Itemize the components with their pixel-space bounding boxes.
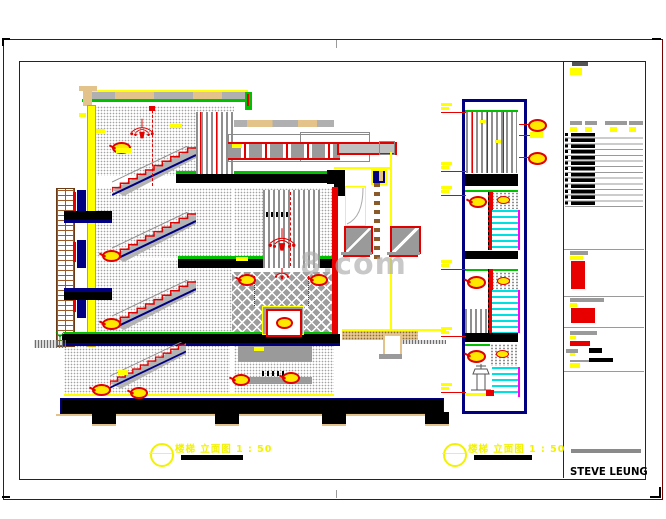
leader-label [441, 186, 467, 196]
tb-label-bar [570, 331, 597, 335]
leader-label [441, 162, 467, 172]
door-swing-arc [346, 187, 365, 225]
roof-green-line [82, 99, 250, 102]
frame-tick-bottom-center [336, 490, 337, 498]
wall-yellow-strip [87, 105, 96, 347]
symbol-fish [102, 250, 121, 262]
callout-oval [528, 152, 547, 165]
tb-label-mark [570, 256, 583, 260]
symbol-fish [282, 372, 300, 384]
brand-logo: STEVE LEUNG [570, 465, 638, 478]
dc-stair-d [492, 367, 520, 397]
label-text-bar [441, 186, 452, 189]
tb-sign-black [589, 348, 602, 353]
dc-oval-b [497, 196, 510, 204]
footing-1 [92, 412, 116, 426]
leader-label [441, 327, 467, 337]
tb-sign-mark [570, 353, 575, 356]
dc-fleck-1 [480, 120, 486, 123]
roof-slab [86, 92, 248, 99]
roof-post-tick [247, 94, 249, 106]
footing-4 [425, 412, 449, 426]
window-bar-2 [73, 242, 76, 262]
dc-oval-d [496, 350, 509, 358]
symbol-fish [238, 274, 256, 286]
leader-label [441, 103, 467, 113]
tan-post [379, 171, 383, 181]
tb-head-mark [585, 127, 592, 132]
tb-sign-line [570, 360, 590, 362]
symbol-fish [469, 196, 487, 208]
frame-tick-br2 [659, 487, 661, 498]
leader-line [441, 392, 466, 393]
frame-tick-top-center [336, 40, 337, 48]
window-bar-1 [73, 192, 76, 212]
label-text-bar [441, 166, 449, 169]
dc-oval-c [497, 277, 510, 285]
stair-flight-4 [110, 342, 186, 390]
landing-2 [64, 292, 112, 300]
leader-label [441, 260, 467, 270]
highlight [232, 144, 242, 148]
tb-label-bar [570, 298, 604, 302]
tb-head-bar [570, 121, 582, 125]
footing-2 [215, 412, 239, 426]
highlight [236, 257, 248, 261]
landing-1-edge [64, 220, 112, 223]
tb-head-bar [629, 121, 643, 125]
highlight [118, 370, 128, 375]
plumb-line [152, 110, 153, 186]
symbol-fish [467, 276, 486, 289]
cabinet-block [238, 346, 312, 362]
chandelier-icon-small [272, 268, 292, 281]
tb-divider [564, 371, 644, 372]
symbol-fish [232, 374, 250, 386]
label-text-bar [441, 383, 452, 386]
stair-flight-3 [112, 280, 196, 330]
terrace-speckle [396, 340, 446, 344]
roof-right-slab [228, 120, 334, 127]
tb-sign-black2 [589, 358, 613, 362]
tb-revision-entries [571, 133, 595, 206]
section-mark-b [443, 443, 467, 467]
window-band [228, 142, 340, 160]
caption-detail-underline [474, 455, 532, 460]
highlight [254, 347, 264, 351]
dc-curtain-a [466, 112, 517, 173]
tb-notes-highlight [570, 68, 582, 75]
curtain-top-line-2 [216, 112, 217, 174]
tb-sign-mark2 [570, 363, 580, 368]
section-mark-a-line [149, 453, 172, 454]
tb-divider [564, 296, 644, 297]
leader-line [441, 336, 466, 337]
curtain-tassels [266, 212, 290, 217]
frame-tick-tr [652, 38, 661, 40]
tb-head-mark [610, 127, 617, 132]
highlight [116, 148, 132, 153]
dc-stair-c [492, 290, 520, 333]
label-text-bar [441, 190, 449, 193]
cad-canvas: 8.com [0, 0, 666, 519]
label-text-bar [441, 260, 452, 263]
highlight [79, 113, 86, 117]
section-mark-b-line [442, 453, 465, 454]
tb-stamp-large [571, 261, 585, 289]
parapet-strip [83, 91, 92, 106]
terrace-footing-base [379, 354, 402, 359]
tb-label-mark [570, 303, 577, 307]
terrace-ground [342, 331, 418, 340]
tb-notes-text [572, 62, 588, 66]
label-text-bar [441, 103, 452, 106]
highlight [170, 124, 182, 128]
tb-divider [564, 249, 644, 250]
label-text-bar [441, 327, 452, 330]
plumb-mark [149, 106, 155, 111]
tb-label-bar [570, 251, 588, 255]
callout-oval [528, 119, 547, 132]
label-text-bar [441, 264, 449, 267]
dc-slab-a [465, 174, 518, 186]
symbol-fish [130, 387, 148, 399]
dc-red-line-1 [472, 112, 473, 173]
railing-end-box [379, 141, 395, 155]
leader-line [441, 195, 466, 196]
ground-left-speckle [34, 340, 66, 348]
plant-icon [54, 331, 66, 341]
chandelier-icon [266, 228, 298, 254]
caption-main-underline [181, 455, 243, 460]
tb-head-mark [570, 127, 577, 132]
callout-tag [530, 132, 543, 138]
section-mark-a [150, 443, 174, 467]
footing-3 [322, 412, 346, 426]
leader-line [441, 112, 466, 113]
tb-divider [564, 327, 644, 328]
tb-stamp-bar [570, 341, 590, 346]
label-text-bar [441, 107, 449, 110]
leader-label [441, 383, 467, 393]
frame-tick-tl2 [2, 38, 4, 46]
tb-revision-dots [565, 133, 568, 206]
leader-line [441, 171, 466, 172]
tb-stamp-medium [571, 308, 595, 323]
symbol-fish [102, 318, 121, 330]
foundation [60, 398, 444, 414]
label-text-bar [441, 387, 449, 390]
door-swing [345, 186, 366, 226]
dc-slab-c [465, 333, 518, 342]
landing-1 [64, 211, 112, 220]
label-text-bar [441, 331, 449, 334]
symbol-fish [92, 384, 111, 396]
caption-detail: 楼梯 立面图 1 : 50 [468, 441, 565, 455]
cabinet-base [240, 377, 312, 384]
wall-navy-2 [77, 240, 86, 268]
dc-red-line-2 [487, 112, 488, 173]
tb-logo-rule [571, 449, 641, 453]
highlight [96, 129, 105, 133]
door-portal-handle [276, 317, 293, 329]
curtain-top-line-1 [200, 112, 201, 174]
dc-stair-b [492, 210, 520, 250]
brand-text: STEVE LEUNG [570, 465, 648, 478]
tb-head-mark [629, 127, 636, 132]
dc-fleck-2 [495, 140, 501, 143]
stair-flight-2 [112, 212, 196, 262]
label-text-bar [441, 162, 452, 165]
caption-main: 楼梯 立面图 1 : 50 [175, 441, 272, 455]
dc-red-bits [486, 390, 494, 396]
tb-head-bar [585, 121, 597, 125]
dc-slab-b [465, 251, 518, 259]
titleblock-divider [563, 61, 564, 478]
watermark-text: 8.com [300, 247, 407, 282]
dc-hatch-c [465, 309, 487, 333]
watermark: 8.com [300, 247, 407, 282]
frame-tick-bl [2, 496, 10, 498]
tb-head-bar [605, 121, 627, 125]
leader-line [441, 269, 466, 270]
tb-label-mark [570, 336, 576, 339]
slab-2f [176, 174, 340, 183]
dc-red-line-3 [503, 112, 504, 173]
